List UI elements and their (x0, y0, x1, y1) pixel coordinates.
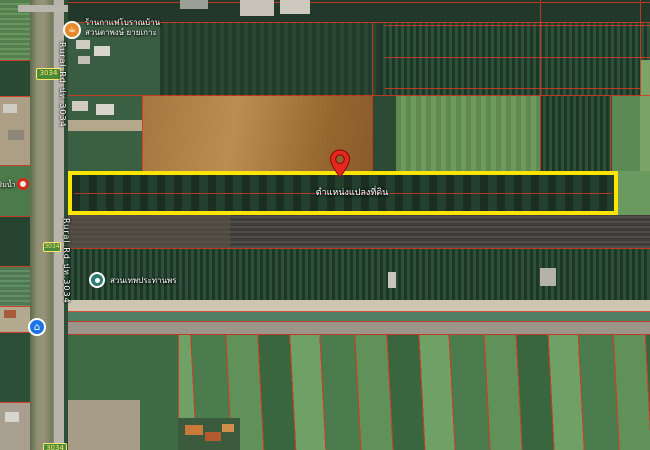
parcel-line (540, 0, 541, 171)
field-patch (612, 96, 640, 171)
parcel-line (385, 57, 650, 58)
building (78, 56, 90, 64)
field-patch (0, 266, 30, 307)
building (94, 46, 110, 56)
field-patch (0, 60, 30, 97)
location-pin[interactable] (328, 149, 352, 183)
building (180, 0, 208, 9)
building (185, 425, 203, 435)
building (388, 272, 396, 288)
building (4, 310, 16, 318)
village-patch (0, 402, 30, 450)
parcel-line (68, 2, 650, 3)
tilled-strip (68, 215, 230, 248)
field-patch (618, 171, 650, 215)
orchard-rows (160, 23, 380, 96)
building (72, 101, 88, 111)
building (3, 104, 17, 113)
parcel-line (385, 88, 650, 89)
field-patch (0, 332, 30, 403)
park-label: สวนเทพประทานพร (110, 276, 177, 286)
building (5, 412, 19, 422)
building (96, 104, 114, 115)
route-badge: 3034 (43, 242, 61, 252)
village-patch (68, 400, 140, 450)
orchard-rows (68, 248, 650, 300)
coffee-shop-label: ร้านกาแฟโบราณบ้าน สวนตาพงษ์ ยายเกาะ (85, 18, 160, 38)
route-badge: 3034 (43, 443, 67, 450)
building (205, 432, 221, 441)
canal-horizontal (68, 312, 650, 321)
park-marker[interactable] (89, 272, 105, 288)
pin-icon (328, 149, 352, 179)
crop-rows (380, 23, 650, 96)
lodging-marker[interactable]: ⌂ (28, 318, 46, 336)
building (280, 0, 310, 14)
road-name-label: Rural Rd ปท.3034 (60, 218, 73, 304)
parcel-line (610, 96, 611, 171)
building (8, 130, 24, 140)
building (240, 0, 274, 16)
road-name-label: Rural Rd ปท.3034 (56, 42, 69, 128)
parcel-line (68, 95, 650, 96)
parcel-line (372, 23, 373, 171)
parcel-line (385, 25, 650, 26)
riverside-poi-label: ร้านริมน้ำ (0, 180, 16, 190)
house-icon: ⌂ (34, 322, 40, 333)
parcel-line (640, 0, 641, 96)
coffee-shop-marker[interactable]: ☕ (63, 21, 81, 39)
parcel-line (68, 248, 650, 249)
coffee-icon: ☕ (68, 25, 76, 35)
field-patch (372, 96, 396, 171)
field-patch (540, 96, 612, 171)
field-patch (0, 165, 30, 217)
bridge (18, 5, 70, 12)
building (76, 40, 90, 49)
park-icon (95, 278, 100, 283)
path (68, 322, 650, 334)
path (68, 120, 142, 131)
field-patch (396, 96, 540, 171)
parcel-line (142, 96, 143, 171)
field-patch (0, 216, 30, 267)
riverside-poi-marker[interactable] (17, 178, 29, 190)
building (222, 424, 234, 432)
satellite-map[interactable]: ตำแหน่งแปลงที่ดิน 3034 3034 3034 Rural R… (0, 0, 650, 450)
parcel-line (68, 311, 650, 312)
building (540, 268, 556, 286)
plot-label: ตำแหน่งแปลงที่ดิน (282, 185, 422, 199)
